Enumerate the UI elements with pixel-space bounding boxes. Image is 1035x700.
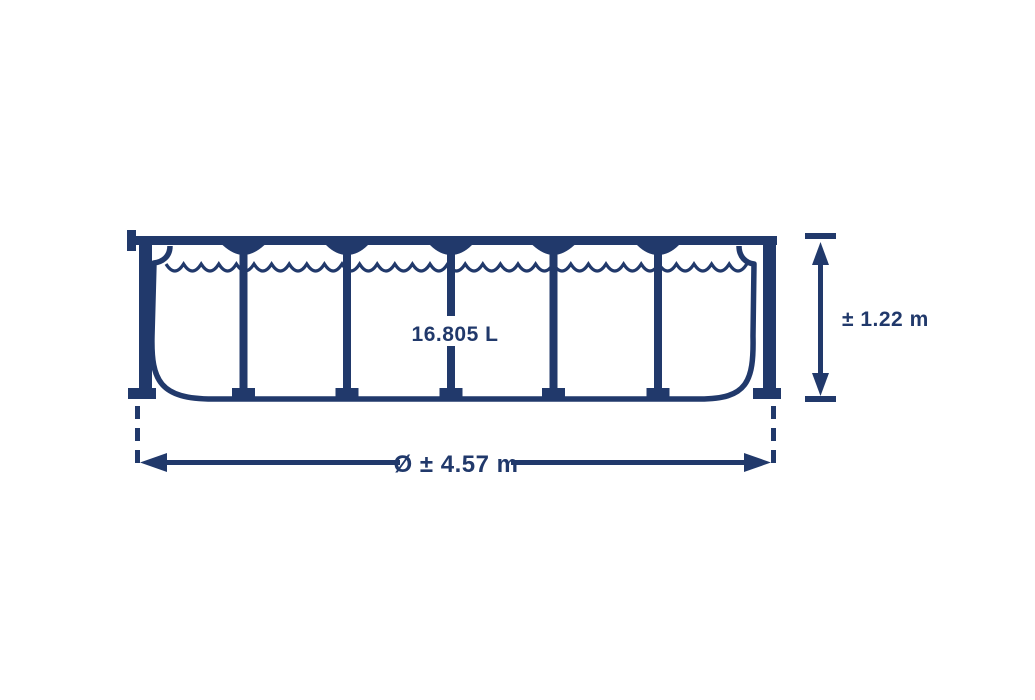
support-post-upper <box>447 250 455 316</box>
top-rail <box>127 236 777 245</box>
support-post-lower <box>447 346 455 390</box>
left-arrowhead-icon <box>140 453 167 472</box>
support-post <box>654 250 662 390</box>
post-foot <box>440 388 463 398</box>
height-top-tick <box>805 233 836 239</box>
height-bottom-tick <box>805 396 836 402</box>
height-label: ± 1.22 m <box>842 308 929 331</box>
diameter-dimension: Ø ± 4.57 m <box>138 406 774 478</box>
post-foot <box>336 388 359 398</box>
height-dimension: ± 1.22 m <box>805 233 929 402</box>
left-leg-foot <box>128 388 156 399</box>
right-arrowhead-icon <box>744 453 771 472</box>
post-foot <box>542 388 565 398</box>
support-post <box>343 250 351 390</box>
pool-diagram-canvas: 16.805 L ± 1.22 m Ø ± 4.57 m <box>0 0 1035 700</box>
left-rail-cap <box>127 230 136 251</box>
right-leg <box>763 237 776 390</box>
post-foot <box>232 388 255 398</box>
diameter-label: Ø ± 4.57 m <box>394 451 519 478</box>
capacity-label: 16.805 L <box>412 323 499 346</box>
support-post <box>240 250 248 390</box>
up-arrowhead-icon <box>812 242 829 265</box>
left-leg <box>139 237 152 390</box>
down-arrowhead-icon <box>812 373 829 396</box>
post-foot <box>647 388 670 398</box>
support-post <box>550 250 558 390</box>
right-leg-foot <box>753 388 781 399</box>
pool-dimension-diagram: 16.805 L ± 1.22 m Ø ± 4.57 m <box>0 0 1035 700</box>
